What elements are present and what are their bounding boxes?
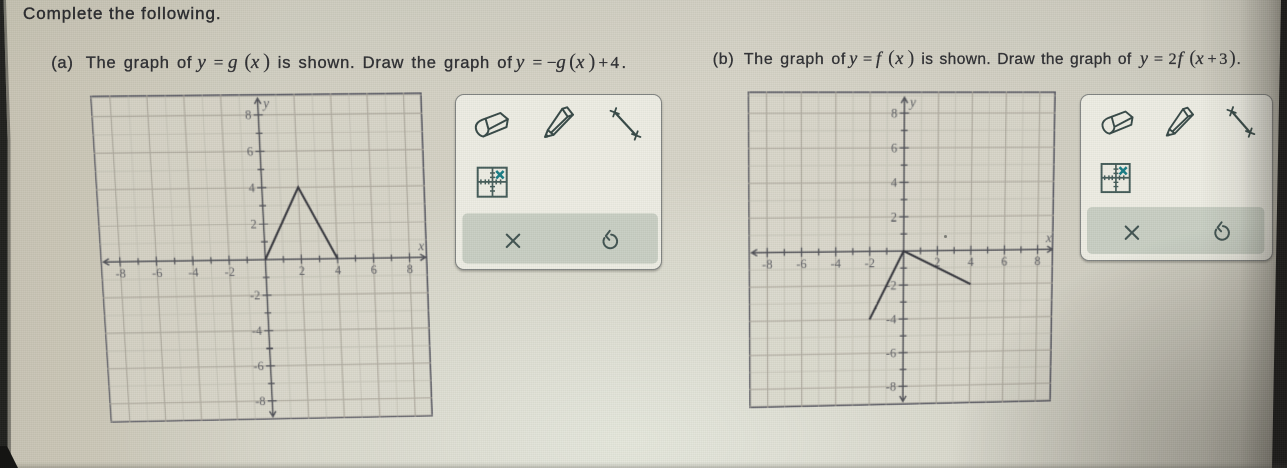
svg-text:2: 2 [891,210,897,224]
svg-text:-6: -6 [886,346,897,360]
svg-text:6: 6 [247,145,254,159]
svg-text:-8: -8 [255,395,266,408]
svg-text:4: 4 [891,175,898,189]
svg-text:-8: -8 [762,257,773,271]
svg-text:2: 2 [250,217,257,231]
svg-text:-6: -6 [152,266,164,280]
svg-text:-2: -2 [864,256,874,270]
svg-text:-8: -8 [115,267,126,281]
svg-text:-2: -2 [224,265,235,279]
svg-text:-6: -6 [253,360,264,374]
svg-text:8: 8 [891,106,898,120]
svg-text:-2: -2 [886,278,896,292]
svg-text:-4: -4 [886,312,897,326]
svg-text:-2: -2 [250,289,261,303]
svg-text:-4: -4 [188,266,200,280]
svg-text:x: x [417,239,425,254]
svg-text:-4: -4 [251,324,262,338]
svg-text:2: 2 [299,264,306,278]
svg-text:4: 4 [248,181,255,195]
svg-text:-6: -6 [796,257,807,271]
svg-text:8: 8 [245,108,252,122]
svg-text:8: 8 [407,263,414,277]
svg-text:6: 6 [891,141,898,155]
svg-text:y: y [908,95,917,110]
svg-text:-8: -8 [886,379,897,393]
svg-text:6: 6 [371,263,378,277]
svg-text:-4: -4 [831,256,842,270]
svg-text:4: 4 [335,264,342,278]
